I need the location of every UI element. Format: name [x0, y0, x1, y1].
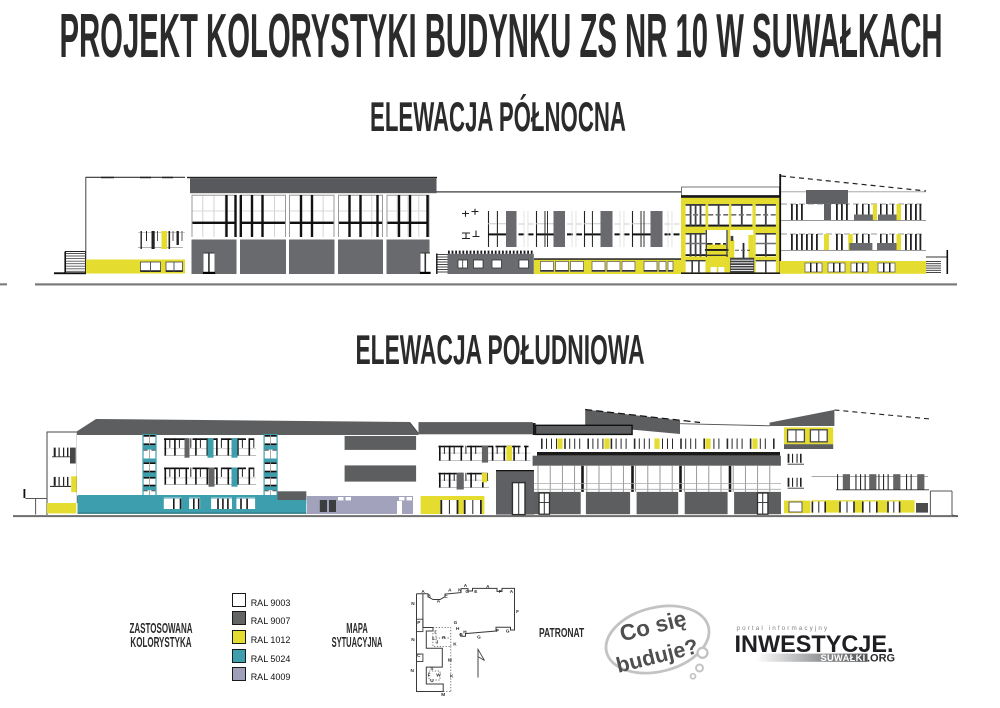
svg-text:G: G — [454, 620, 458, 625]
svg-text:F: F — [428, 673, 431, 678]
svg-text:F: F — [499, 589, 502, 594]
svg-text:F: F — [496, 628, 499, 633]
svg-text:K: K — [453, 642, 457, 647]
svg-text:N: N — [411, 601, 415, 606]
svg-text:M: M — [441, 692, 445, 697]
svg-text:G: G — [477, 635, 481, 640]
svg-text:U: U — [430, 678, 434, 683]
svg-text:C: C — [417, 653, 421, 658]
svg-text:K: K — [450, 673, 454, 678]
svg-text:G: G — [465, 589, 469, 594]
svg-text:F: F — [516, 609, 519, 614]
svg-text:E: E — [474, 589, 477, 594]
svg-text:G: G — [506, 628, 510, 633]
svg-text:SUWAŁKI: SUWAŁKI — [821, 653, 866, 663]
svg-text:A: A — [421, 589, 425, 594]
svg-text:H: H — [456, 626, 460, 631]
svg-text:W: W — [436, 673, 441, 678]
svg-text:J: J — [436, 640, 439, 645]
svg-text:N: N — [411, 637, 415, 642]
svg-text:P: P — [417, 620, 420, 625]
svg-text:R: R — [442, 635, 446, 640]
svg-text:I: I — [434, 629, 435, 634]
svg-text:A: A — [464, 583, 468, 588]
svg-text:A: A — [448, 588, 452, 593]
svg-text:C: C — [444, 594, 448, 599]
svg-text:N: N — [411, 668, 415, 673]
svg-text:M: M — [448, 658, 452, 663]
svg-text:.ORG: .ORG — [867, 652, 895, 664]
svg-text:G: G — [459, 632, 463, 637]
svg-text:A: A — [510, 589, 514, 594]
svg-text:L: L — [432, 636, 435, 641]
svg-text:H: H — [463, 629, 467, 634]
svg-text:S: S — [430, 666, 433, 671]
